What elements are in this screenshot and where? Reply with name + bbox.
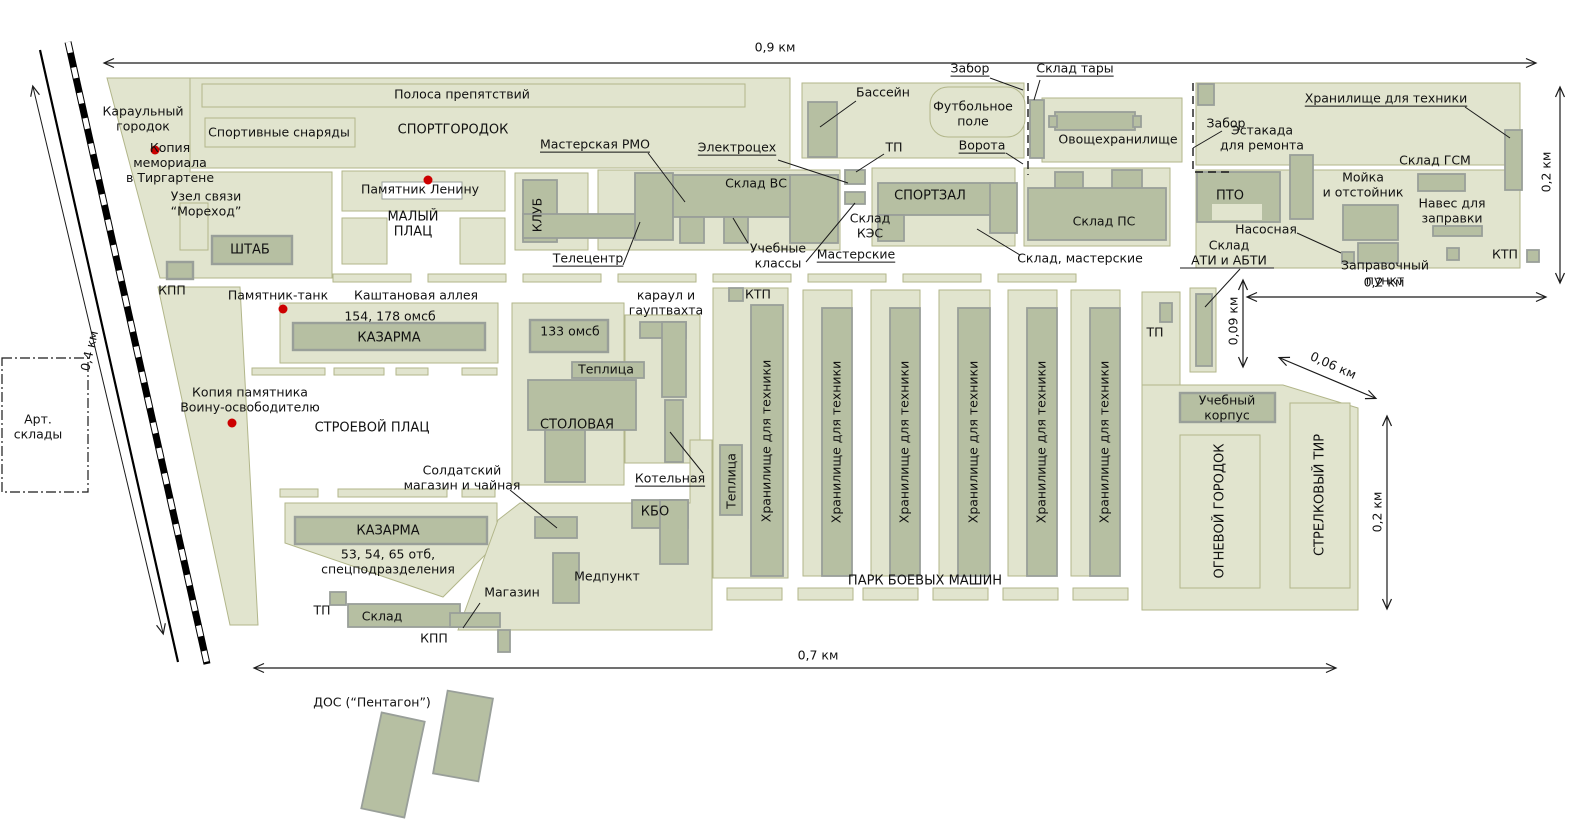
base-plan-map: 0,9 км0,2 км0,2 км0,09 км0,06 км0,2 км0,… bbox=[0, 0, 1594, 830]
kpp-2-building bbox=[498, 630, 510, 652]
medpunkt-building bbox=[553, 553, 579, 603]
khranilishche-5-building bbox=[1027, 308, 1057, 576]
map-graphics bbox=[0, 0, 1594, 830]
kazarma-2-building bbox=[295, 517, 487, 544]
warrior-dot bbox=[228, 419, 237, 428]
bassein-building bbox=[808, 102, 837, 157]
teplitsa-1-building bbox=[572, 362, 644, 378]
nasosnaya-building bbox=[1342, 252, 1354, 263]
moyka-building bbox=[1343, 205, 1398, 240]
sklad-4-building bbox=[348, 604, 460, 627]
omsb-133-building bbox=[530, 320, 608, 352]
uzel-svyazi-building bbox=[180, 203, 208, 250]
khranilishche-6-building bbox=[1090, 308, 1120, 576]
pto-building bbox=[1197, 172, 1280, 222]
khranilishche-4-building bbox=[958, 308, 990, 576]
sklad-gsm-building bbox=[1418, 174, 1465, 191]
ognevoy-gorodok-area bbox=[1180, 435, 1260, 588]
art-sklady-area bbox=[2, 358, 88, 492]
khranilishche-top-building bbox=[1505, 130, 1522, 190]
ktp-park-building bbox=[729, 288, 743, 301]
khranilishche-1-building bbox=[751, 305, 783, 576]
ovoshch-building bbox=[1055, 112, 1135, 130]
lenin-dot bbox=[424, 176, 433, 185]
tp-3-building bbox=[1160, 303, 1172, 322]
teplitsa-2-building bbox=[720, 445, 742, 515]
khranilishche-2-building bbox=[822, 308, 852, 576]
kpp-1-building bbox=[167, 262, 193, 279]
football-field bbox=[930, 87, 1025, 137]
kazarma-1-building bbox=[293, 323, 485, 350]
kotelnaya-building bbox=[665, 400, 683, 462]
tiergarten-dot bbox=[151, 146, 160, 155]
shtab-building bbox=[212, 236, 292, 264]
tp-4-building bbox=[330, 592, 346, 605]
tank-dot bbox=[279, 305, 288, 314]
khranilishche-3-building bbox=[890, 308, 920, 576]
magazin-building bbox=[450, 613, 500, 627]
pamyatnik-leninu-box bbox=[382, 182, 462, 199]
dos-building-2 bbox=[433, 691, 493, 782]
dos-building-1 bbox=[361, 712, 424, 817]
naves-building bbox=[1433, 226, 1482, 236]
strelkovy-tir-area bbox=[1290, 403, 1350, 588]
estakada-building bbox=[1290, 155, 1313, 219]
uchebny-korpus-building bbox=[1180, 393, 1275, 422]
sklad-tary-building bbox=[1030, 100, 1044, 158]
